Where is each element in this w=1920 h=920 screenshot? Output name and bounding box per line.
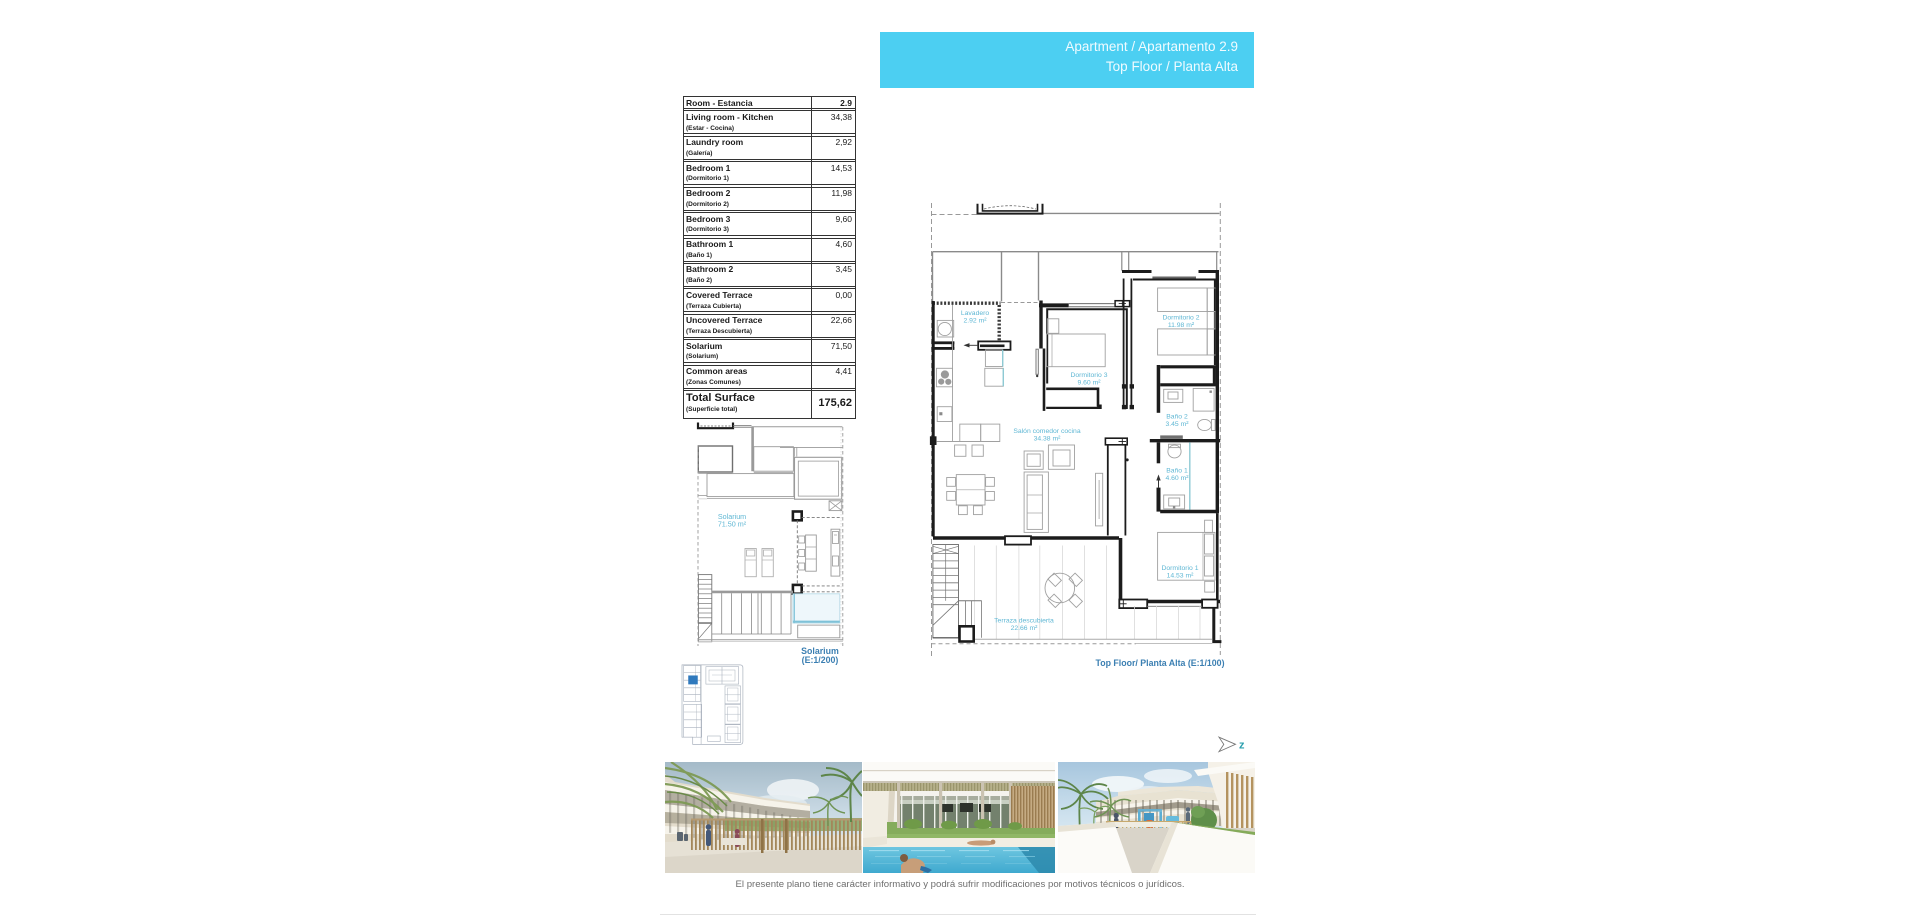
svg-text:Baño 1: Baño 1 — [1166, 468, 1188, 475]
svg-text:Lavadero: Lavadero — [961, 310, 990, 317]
svg-text:3.45 m²: 3.45 m² — [1165, 421, 1189, 428]
svg-text:2.92 m²: 2.92 m² — [963, 318, 987, 325]
svg-text:9.60 m²: 9.60 m² — [1077, 380, 1101, 387]
svg-text:4.60 m²: 4.60 m² — [1165, 475, 1189, 482]
svg-text:Dormitorio 3: Dormitorio 3 — [1070, 372, 1107, 379]
svg-text:34.38 m²: 34.38 m² — [1034, 436, 1062, 443]
svg-text:14.53 m²: 14.53 m² — [1167, 573, 1195, 580]
svg-text:71.50 m²: 71.50 m² — [718, 520, 747, 529]
svg-text:22.66 m²: 22.66 m² — [1011, 625, 1039, 632]
svg-text:Dormitorio 2: Dormitorio 2 — [1162, 315, 1199, 322]
svg-text:Dormitorio 1: Dormitorio 1 — [1161, 565, 1198, 572]
svg-text:Baño 2: Baño 2 — [1166, 414, 1188, 421]
svg-text:Salón comedor cocina: Salón comedor cocina — [1013, 428, 1080, 435]
svg-text:Terraza descubierta: Terraza descubierta — [994, 617, 1054, 624]
svg-text:z: z — [1239, 740, 1245, 752]
svg-text:11.98 m²: 11.98 m² — [1168, 322, 1195, 329]
